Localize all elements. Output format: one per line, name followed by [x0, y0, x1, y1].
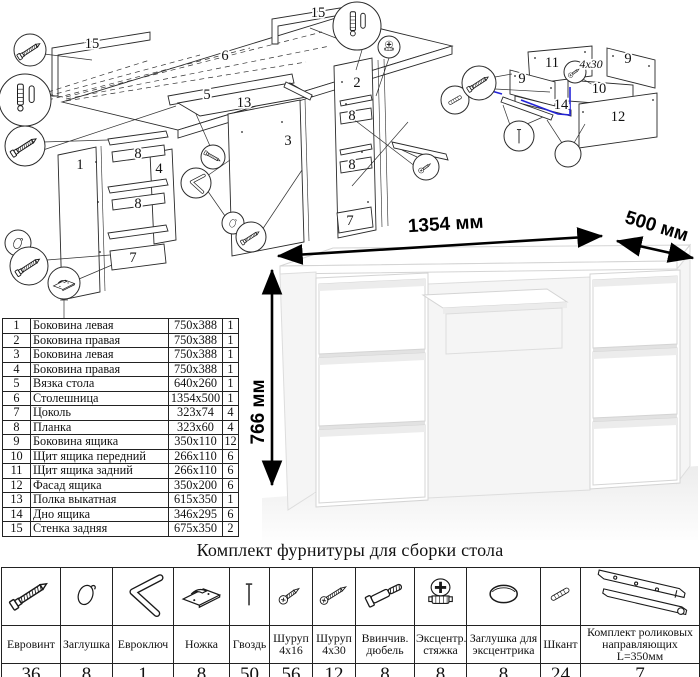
part-number: 15	[3, 522, 31, 537]
part-number-label: 12	[611, 109, 626, 125]
foot-icon	[174, 568, 230, 626]
nail-icon	[230, 568, 270, 626]
confirmat-icon	[2, 568, 61, 626]
hardware-qty: 24	[541, 663, 581, 677]
part-name: Полка выкатная	[31, 493, 169, 508]
part-qty: 1	[223, 333, 239, 348]
part-number-label: 5	[203, 87, 210, 103]
part-qty: 1	[223, 391, 239, 406]
part-number: 12	[3, 478, 31, 493]
part-size: 266x110	[169, 449, 223, 464]
part-size: 346x295	[169, 507, 223, 522]
hardware-qty: 7	[581, 663, 700, 677]
hardware-name: Шкант	[541, 626, 581, 664]
part-number: 14	[3, 507, 31, 522]
parts-table-row: 8Планка323x604	[3, 420, 239, 435]
parts-table-row: 6Столешница1354x5001	[3, 391, 239, 406]
desk-depth-label: 500 мм	[622, 207, 690, 246]
part-qty: 1	[223, 362, 239, 377]
part-size: 323x74	[169, 406, 223, 421]
part-size: 750x388	[169, 362, 223, 377]
hardware-qty: 50	[230, 663, 270, 677]
part-number-label: 3	[284, 133, 291, 149]
desk-width-label: 1354 мм	[407, 212, 484, 238]
hardware-qty: 8	[61, 663, 113, 677]
hardware-name: Шуруп 4x30	[313, 626, 356, 664]
parts-table-row: 5Вязка стола640x2601	[3, 377, 239, 392]
part-qty: 2	[223, 522, 239, 537]
part-size: 640x260	[169, 377, 223, 392]
desk-height-label: 766 мм	[248, 379, 269, 444]
hardware-name: Заглушка для эксцентрика	[467, 626, 541, 664]
part-number-label: 9	[624, 51, 631, 67]
part-number-label: 15	[85, 36, 100, 52]
parts-table-row: 1Боковина левая750x3881	[3, 319, 239, 334]
hardware-name: Заглушка	[61, 626, 113, 664]
parts-table-row: 10Щит ящика передний266x1106	[3, 449, 239, 464]
part-number: 13	[3, 493, 31, 508]
part-number-label: 10	[592, 81, 607, 97]
part-number-label: 13	[237, 95, 252, 111]
part-name: Стенка задняя	[31, 522, 169, 537]
part-number: 6	[3, 391, 31, 406]
screw-short-icon	[270, 568, 313, 626]
part-number-label: 15	[311, 5, 326, 21]
parts-table-row: 9Боковина ящика350x11012	[3, 435, 239, 450]
hardware-name: Ввинчив. дюбель	[356, 626, 415, 664]
part-number-label: 8	[134, 196, 141, 212]
part-qty: 6	[223, 478, 239, 493]
hardware-qty: 8	[356, 663, 415, 677]
part-name: Вязка стола	[31, 377, 169, 392]
hardware-qty: 8	[415, 663, 467, 677]
parts-table-row: 7Цоколь323x744	[3, 406, 239, 421]
part-number-label: 4x30	[579, 57, 602, 71]
part-qty: 1	[223, 319, 239, 334]
part-qty: 4	[223, 406, 239, 421]
part-size: 1354x500	[169, 391, 223, 406]
part-number-label: 8	[134, 146, 141, 162]
part-name: Боковина левая	[31, 348, 169, 363]
part-qty: 1	[223, 493, 239, 508]
part-qty: 1	[223, 348, 239, 363]
part-name: Боковина ящика	[31, 435, 169, 450]
part-number-label: 4	[155, 161, 163, 177]
hardware-qty: 56	[270, 663, 313, 677]
parts-table-row: 12Фасад ящика350x2006	[3, 478, 239, 493]
part-name: Цоколь	[31, 406, 169, 421]
hardware-qty: 1	[113, 663, 174, 677]
part-size: 750x388	[169, 333, 223, 348]
part-number-label: 6	[221, 48, 228, 64]
hardware-kit-table: ЕвровинтЗаглушкаЕвроключНожкаГвоздьШуруп…	[1, 567, 700, 677]
hardware-name: Евровинт	[2, 626, 61, 664]
parts-table-row: 4Боковина правая750x3881	[3, 362, 239, 377]
part-number: 7	[3, 406, 31, 421]
hardware-kit-title: Комплект фурнитуры для сборки стола	[0, 540, 700, 561]
hardware-qty: 36	[2, 663, 61, 677]
parts-table-row: 15Стенка задняя675x3502	[3, 522, 239, 537]
part-number: 3	[3, 348, 31, 363]
part-number: 10	[3, 449, 31, 464]
part-qty: 6	[223, 507, 239, 522]
part-number-label: 8	[348, 157, 355, 173]
part-number: 2	[3, 333, 31, 348]
part-number: 9	[3, 435, 31, 450]
parts-list-body: 1Боковина левая750x38812Боковина правая7…	[3, 319, 239, 537]
part-name: Боковина правая	[31, 362, 169, 377]
dowel-icon	[541, 568, 581, 626]
part-qty: 6	[223, 449, 239, 464]
hardware-name: Эксцентр. стяжка	[415, 626, 467, 664]
hardware-name: Комплект роликовых направляющих L=350мм	[581, 626, 700, 664]
part-number-label: 9	[518, 71, 525, 87]
part-size: 750x388	[169, 319, 223, 334]
screw-long-icon	[313, 568, 356, 626]
part-number: 4	[3, 362, 31, 377]
part-number: 1	[3, 319, 31, 334]
parts-table-row: 13Полка выкатная615x3501	[3, 493, 239, 508]
part-size: 750x388	[169, 348, 223, 363]
plug-icon	[61, 568, 113, 626]
part-number: 11	[3, 464, 31, 479]
part-number-label: 1	[76, 157, 83, 173]
part-number: 5	[3, 377, 31, 392]
hardware-qty: 8	[174, 663, 230, 677]
part-size: 675x350	[169, 522, 223, 537]
cam-icon	[415, 568, 467, 626]
part-number-label: 2	[353, 75, 360, 91]
parts-table-row: 14Дно ящика346x2956	[3, 507, 239, 522]
hardware-name: Ножка	[174, 626, 230, 664]
assembly-instruction-page: 156155133218487887 11991014124x30	[0, 0, 700, 677]
part-size: 323x60	[169, 420, 223, 435]
part-size: 350x200	[169, 478, 223, 493]
hardware-name: Гвоздь	[230, 626, 270, 664]
part-name: Боковина левая	[31, 319, 169, 334]
desk-dimension-drawing: 1354 мм 500 мм 766 мм	[250, 198, 700, 540]
part-name: Планка	[31, 420, 169, 435]
parts-table-row: 2Боковина правая750x3881	[3, 333, 239, 348]
part-size: 350x110	[169, 435, 223, 450]
part-name: Щит ящика задний	[31, 464, 169, 479]
part-number-label: 8	[348, 108, 355, 124]
part-qty: 1	[223, 377, 239, 392]
part-size: 266x110	[169, 464, 223, 479]
part-size: 615x350	[169, 493, 223, 508]
hardware-name: Шуруп 4x16	[270, 626, 313, 664]
part-qty: 12	[223, 435, 239, 450]
part-number: 8	[3, 420, 31, 435]
part-number-label: 14	[554, 97, 569, 113]
part-name: Боковина правая	[31, 333, 169, 348]
part-qty: 6	[223, 464, 239, 479]
cam-cover-icon	[467, 568, 541, 626]
part-name: Дно ящика	[31, 507, 169, 522]
part-name: Столешница	[31, 391, 169, 406]
part-name: Фасад ящика	[31, 478, 169, 493]
part-name: Щит ящика передний	[31, 449, 169, 464]
hexkey-icon	[113, 568, 174, 626]
parts-table-row: 3Боковина левая750x3881	[3, 348, 239, 363]
parts-list-table: 1Боковина левая750x38812Боковина правая7…	[2, 318, 239, 537]
part-number-label: 11	[545, 55, 559, 71]
slides-icon	[581, 568, 700, 626]
threaded-dowel-icon	[356, 568, 415, 626]
hardware-qty: 12	[313, 663, 356, 677]
part-qty: 4	[223, 420, 239, 435]
hardware-name: Евроключ	[113, 626, 174, 664]
parts-table-row: 11Щит ящика задний266x1106	[3, 464, 239, 479]
part-number-label: 7	[129, 250, 136, 266]
hardware-qty: 8	[467, 663, 541, 677]
